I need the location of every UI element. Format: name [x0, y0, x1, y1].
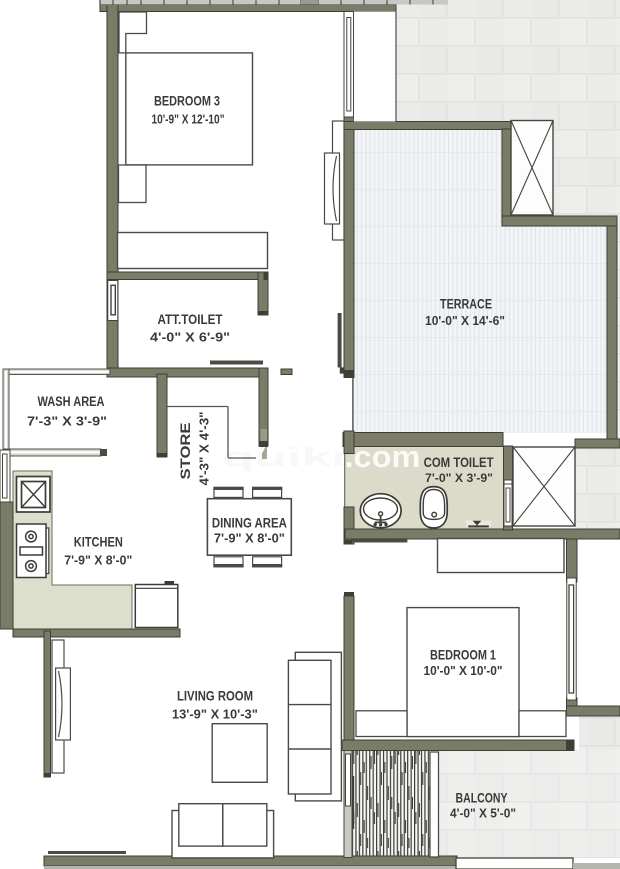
svg-text:10'-0" X 10'-0": 10'-0" X 10'-0": [424, 664, 503, 678]
svg-text:LIVING ROOM: LIVING ROOM: [177, 689, 253, 704]
svg-text:4'-0" X 5'-0": 4'-0" X 5'-0": [450, 807, 516, 821]
svg-text:10'-0" X 14'-6": 10'-0" X 14'-6": [425, 314, 505, 328]
svg-text:10'-9" X 12'-10": 10'-9" X 12'-10": [152, 113, 225, 127]
svg-text:DINING AREA: DINING AREA: [212, 516, 287, 531]
svg-text:TERRACE: TERRACE: [440, 297, 492, 312]
svg-text:BALCONY: BALCONY: [456, 791, 508, 806]
svg-text:COM TOILET: COM TOILET: [424, 455, 495, 470]
svg-text:ATT.TOILET: ATT.TOILET: [158, 312, 224, 327]
svg-text:7'-9" X 8'-0": 7'-9" X 8'-0": [64, 554, 132, 568]
svg-text:BEDROOM 1: BEDROOM 1: [430, 648, 496, 663]
svg-text:7'-9" X 8'-0": 7'-9" X 8'-0": [214, 532, 285, 546]
svg-text:KITCHEN: KITCHEN: [74, 535, 123, 550]
svg-text:7'-0" X 3'-9": 7'-0" X 3'-9": [425, 471, 493, 485]
svg-text:.com: .com: [345, 439, 421, 474]
svg-text:STORE: STORE: [178, 423, 193, 480]
svg-text:BEDROOM 3: BEDROOM 3: [154, 94, 220, 109]
svg-text:4'-0" X 6'-9": 4'-0" X 6'-9": [150, 331, 230, 345]
svg-text:quikr: quikr: [222, 442, 353, 472]
svg-text:WASH AREA: WASH AREA: [38, 394, 105, 409]
svg-text:4'-3" X 4'-3": 4'-3" X 4'-3": [198, 411, 212, 485]
svg-text:7'-3" X 3'-9": 7'-3" X 3'-9": [27, 415, 107, 429]
svg-text:13'-9" X 10'-3": 13'-9" X 10'-3": [172, 708, 258, 722]
